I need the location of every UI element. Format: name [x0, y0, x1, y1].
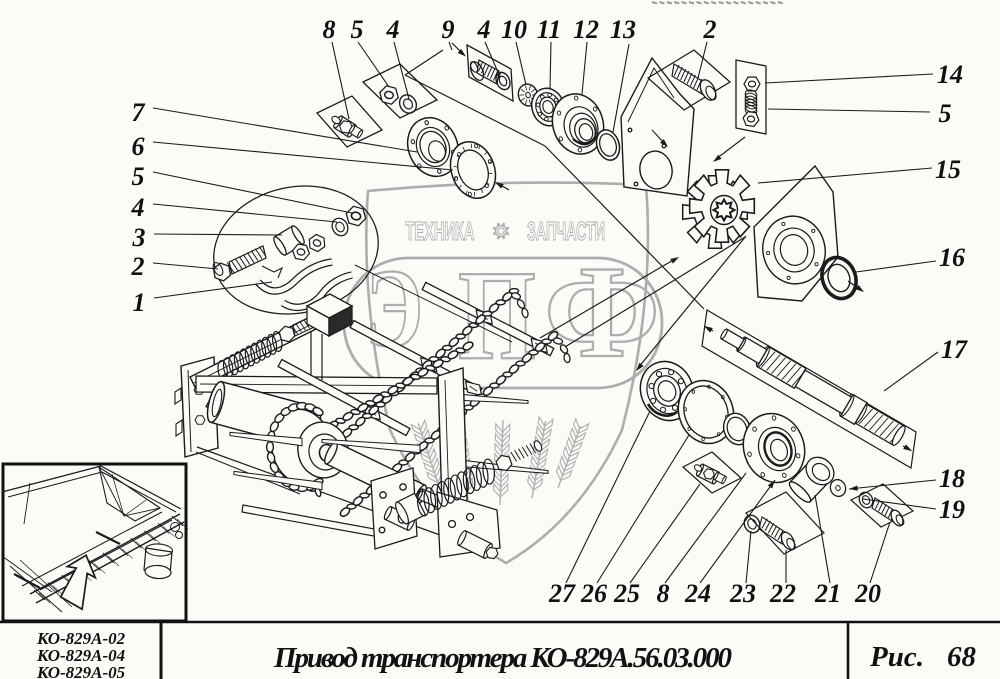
- svg-text:4: 4: [477, 15, 491, 44]
- svg-text:9: 9: [442, 15, 455, 44]
- svg-text:8: 8: [657, 579, 670, 608]
- svg-text:14: 14: [937, 60, 963, 89]
- svg-text:4: 4: [386, 15, 400, 44]
- svg-text:12: 12: [573, 15, 599, 44]
- svg-text:16: 16: [939, 243, 965, 272]
- svg-text:25: 25: [613, 579, 640, 608]
- svg-text:5: 5: [939, 99, 952, 128]
- svg-text:20: 20: [854, 579, 881, 608]
- svg-text:13: 13: [610, 15, 636, 44]
- svg-text:ТЕХНИКА: ТЕХНИКА: [406, 216, 475, 246]
- svg-text:11: 11: [537, 15, 562, 44]
- svg-text:5: 5: [132, 162, 145, 191]
- svg-text:6: 6: [132, 132, 145, 161]
- svg-text:Привод транспортера КО-829А.56: Привод транспортера КО-829А.56.03.000: [273, 642, 732, 674]
- svg-text:3: 3: [132, 223, 146, 252]
- svg-text:68: 68: [947, 641, 977, 673]
- svg-text:21: 21: [814, 579, 841, 608]
- svg-text:КО-829А-05: КО-829А-05: [36, 663, 126, 679]
- svg-text:23: 23: [729, 579, 756, 608]
- svg-text:15: 15: [935, 155, 961, 184]
- svg-text:2: 2: [131, 252, 145, 281]
- svg-text:8: 8: [323, 15, 336, 44]
- svg-text:10: 10: [501, 15, 527, 44]
- svg-text:7: 7: [132, 98, 146, 127]
- svg-text:27: 27: [548, 579, 576, 608]
- svg-text:4: 4: [131, 193, 145, 222]
- svg-text:Рис.: Рис.: [869, 641, 924, 673]
- svg-text:22: 22: [769, 579, 796, 608]
- svg-text:17: 17: [941, 335, 968, 364]
- svg-text:19: 19: [939, 495, 965, 524]
- svg-text:1: 1: [133, 288, 146, 317]
- svg-text:5: 5: [351, 15, 364, 44]
- svg-text:18: 18: [939, 464, 965, 493]
- svg-text:26: 26: [580, 579, 607, 608]
- svg-text:24: 24: [684, 579, 711, 608]
- svg-text:2: 2: [703, 15, 717, 44]
